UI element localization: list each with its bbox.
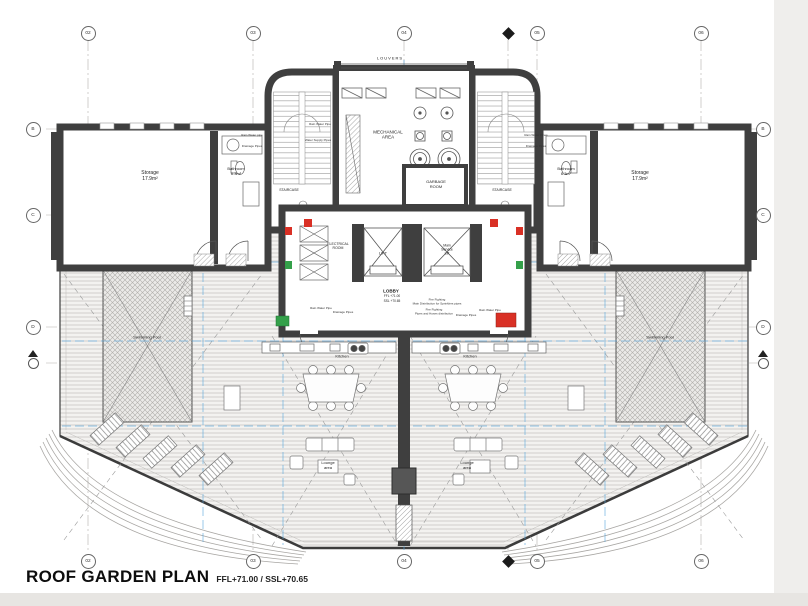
drawing-levels: FFL+71.00 / SSL+70.65 [216, 574, 308, 584]
outdoor-kitchen-left [262, 342, 396, 354]
roof-garden-plan-sheet: LOUVERS MECHANICAL AREA GARBAGE ROOM STA… [0, 0, 808, 606]
grid-bubble-05-bottom: 05 [530, 554, 545, 569]
louvers-label: LOUVERS [377, 57, 403, 62]
lounge-left-label: Lounge area [321, 461, 334, 471]
right-wing-storage-block [540, 123, 757, 268]
grid-bubble-04-top: 04 [397, 26, 412, 41]
grid-bubble-02-top: 02 [81, 26, 96, 41]
grid-bubble-B-left: B [26, 122, 41, 137]
swimming-pool-right [616, 270, 705, 422]
drainage-note-tower-left: Drainage Pipes [242, 145, 263, 149]
garbage-room-label: GARBAGE ROOM [426, 180, 446, 190]
grid-bubble-06-top: 06 [694, 26, 709, 41]
storage-left-label: Storage 17.9m² [141, 170, 159, 182]
rain-water-pipe-note-mech: Rain Water Pipe [309, 123, 331, 127]
mechanical-area-block [334, 61, 474, 208]
staircase-right-label: STAIRCASE [492, 188, 512, 192]
pool-right-label: Swimming Pool [646, 336, 674, 341]
left-wing-storage-block [51, 123, 268, 268]
pool-left-label: Swimming Pool [133, 336, 161, 341]
bathroom-left-label: Bathroom 6.3m² [227, 167, 244, 177]
kitchen-right-label: Kitchen [463, 355, 476, 360]
rain-water-pipe-note-tower-left: Rain Water pipe [241, 134, 262, 138]
swimming-pool-left [103, 270, 192, 422]
lobby-label: LOBBY [383, 288, 399, 293]
rain-water-pipes-note-tower-right: Rain Water Pipes [524, 134, 547, 138]
grid-bubble-06-bottom: 06 [694, 554, 709, 569]
grid-bubble-05-top: 05 [530, 26, 545, 41]
fire-distribution-note: Fire Fighting Pipes and Hoses distributi… [415, 308, 453, 315]
grid-bubble-D-left: D [26, 320, 41, 335]
service-lift-label: Main Service Lift [441, 244, 453, 257]
drainage-pipes-note-right: Drainage Pipes [456, 314, 477, 318]
water-supply-note-mech: Water Supply Pipes [305, 139, 331, 143]
grid-bubble-B-right: B [756, 122, 771, 137]
elevation-marker-right-ref [758, 358, 769, 369]
mechanical-area-label: MECHANICAL AREA [373, 130, 403, 141]
drawing-title-block: ROOF GARDEN PLAN FFL+71.00 / SSL+70.65 [26, 567, 308, 587]
grid-bubble-C-right: C [756, 208, 771, 223]
elevation-marker-left-icon [28, 350, 38, 357]
lounge-right-label: Lounge area [460, 461, 473, 471]
electrical-shafts [300, 226, 328, 280]
rain-water-pipe-note: Rain Water Pipe [310, 307, 332, 311]
central-core-block [276, 208, 528, 352]
storage-right-label: Storage 17.9m² [631, 170, 649, 182]
grid-bubble-D-right: D [756, 320, 771, 335]
roof-garden-plan-drawing [0, 0, 808, 606]
grid-bubble-C-left: C [26, 208, 41, 223]
grid-bubble-03-top: 03 [246, 26, 261, 41]
electrical-room-label: ELECTRICAL ROOM [327, 242, 349, 250]
lift-label: LIFT [379, 252, 387, 257]
lobby-ssl-label: SSL +70.65 [384, 300, 401, 304]
grid-bubble-04-bottom: 04 [397, 554, 412, 569]
bathroom-right-label: Bathroom 6.3m² [557, 167, 574, 177]
kitchen-left-label: Kitchen [335, 355, 348, 360]
drawing-title: ROOF GARDEN PLAN [26, 567, 209, 587]
outdoor-kitchen-right [412, 342, 546, 354]
drainage-pipes-note: Drainage Pipes [333, 311, 354, 315]
drainage-note-tower-right: Drainage Pipes [526, 145, 547, 149]
staircase-left-label: STAIRCASE [279, 188, 299, 192]
fire-main-note: Fire Fighting Main Distribution for Spri… [413, 298, 462, 305]
pool-ladder-icon [616, 296, 624, 316]
elevation-marker-right-icon [758, 350, 768, 357]
rain-water-pipe-note-right: Rain Water Pipe [479, 309, 501, 313]
pool-ladder-icon [184, 296, 192, 316]
elevation-marker-left-ref [28, 358, 39, 369]
